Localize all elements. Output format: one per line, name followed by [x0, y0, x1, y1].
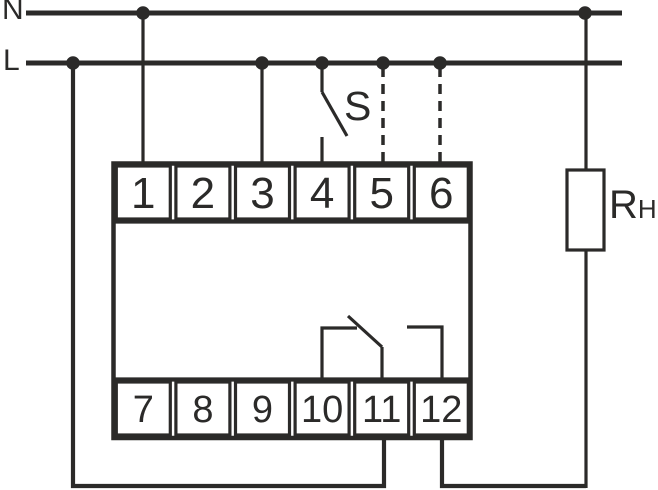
terminal-label-11: 11 [362, 389, 401, 431]
junction-dot-live-5 [376, 56, 390, 70]
junction-dot-live-4 [315, 56, 329, 70]
terminal-label-7: 7 [133, 389, 154, 431]
terminal-label-5: 5 [369, 169, 393, 218]
relay-blade [348, 316, 382, 347]
relay-bracket-terminal-12 [407, 327, 442, 379]
junction-dot-live-return [66, 56, 80, 70]
relay-bracket-terminal-10 [322, 328, 357, 379]
junction-dot-neutral-1 [136, 6, 150, 20]
terminal-label-10: 10 [301, 389, 343, 431]
switch-label: S [344, 83, 371, 129]
load-resistor-box [567, 170, 604, 250]
load-label-main: R [609, 183, 638, 227]
wiring-diagram: N L S RH [0, 0, 658, 490]
terminal-label-1: 1 [131, 169, 155, 218]
neutral-label: N [2, 0, 24, 26]
terminal-label-9: 9 [252, 389, 273, 431]
wire-terminal-12-bottom [442, 438, 586, 486]
load-label-sub: H [638, 194, 657, 224]
junction-dot-neutral-load [578, 6, 592, 20]
load-label: RH [609, 183, 657, 227]
terminal-label-2: 2 [191, 169, 215, 218]
terminal-label-12: 12 [420, 389, 462, 431]
wiring-diagram-canvas: N L S RH [0, 0, 658, 490]
terminal-label-3: 3 [250, 169, 274, 218]
terminal-label-4: 4 [310, 169, 334, 218]
live-label: L [3, 44, 20, 77]
junction-dot-live-6 [433, 56, 447, 70]
terminal-label-8: 8 [192, 389, 213, 431]
junction-dot-live-3 [255, 56, 269, 70]
terminal-label-6: 6 [429, 169, 453, 218]
